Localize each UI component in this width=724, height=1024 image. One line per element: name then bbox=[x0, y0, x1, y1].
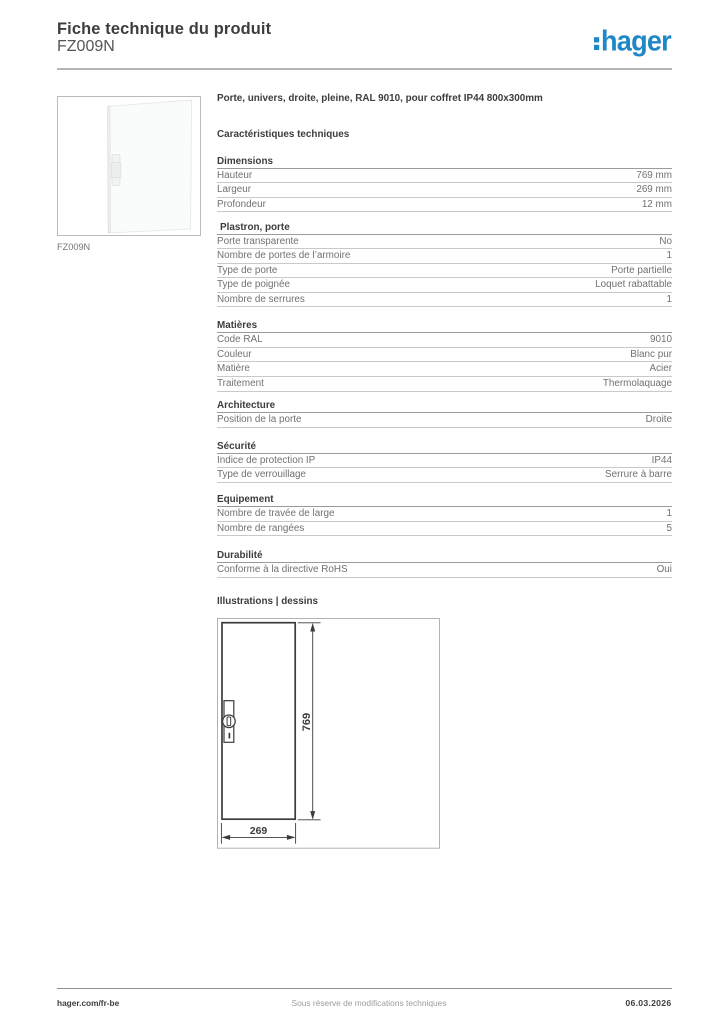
svg-text:hager: hager bbox=[601, 26, 672, 57]
svg-text:769: 769 bbox=[301, 713, 313, 731]
svg-text:269: 269 bbox=[250, 825, 268, 837]
